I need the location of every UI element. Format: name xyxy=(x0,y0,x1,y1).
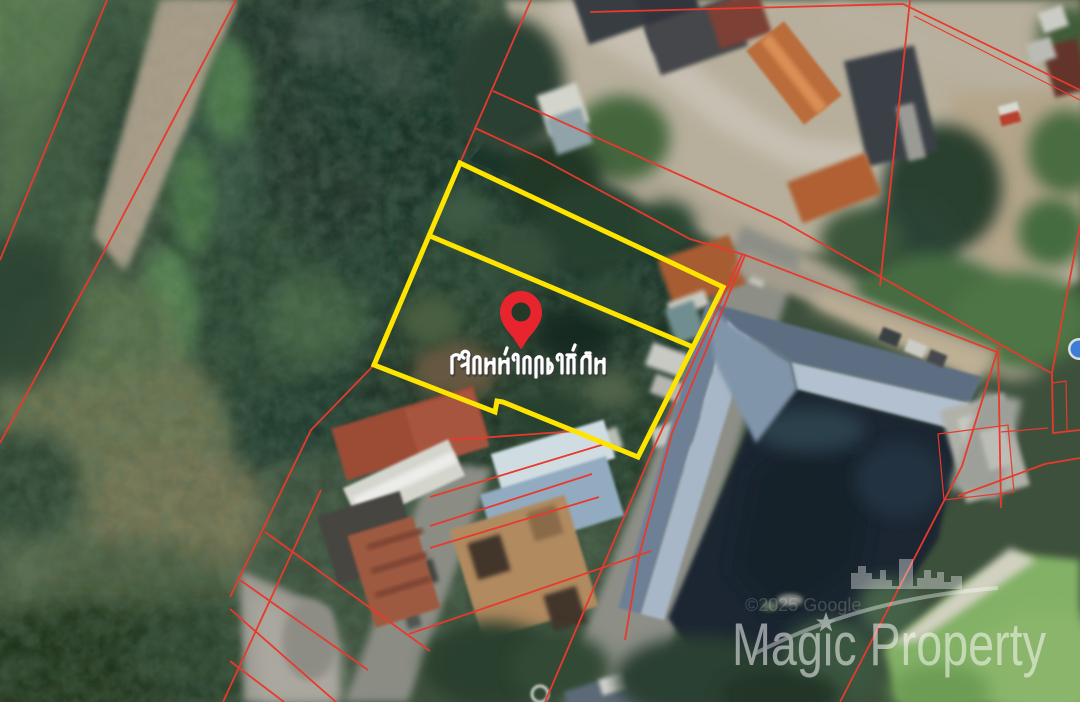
svg-text:Magic Property: Magic Property xyxy=(732,611,1046,678)
